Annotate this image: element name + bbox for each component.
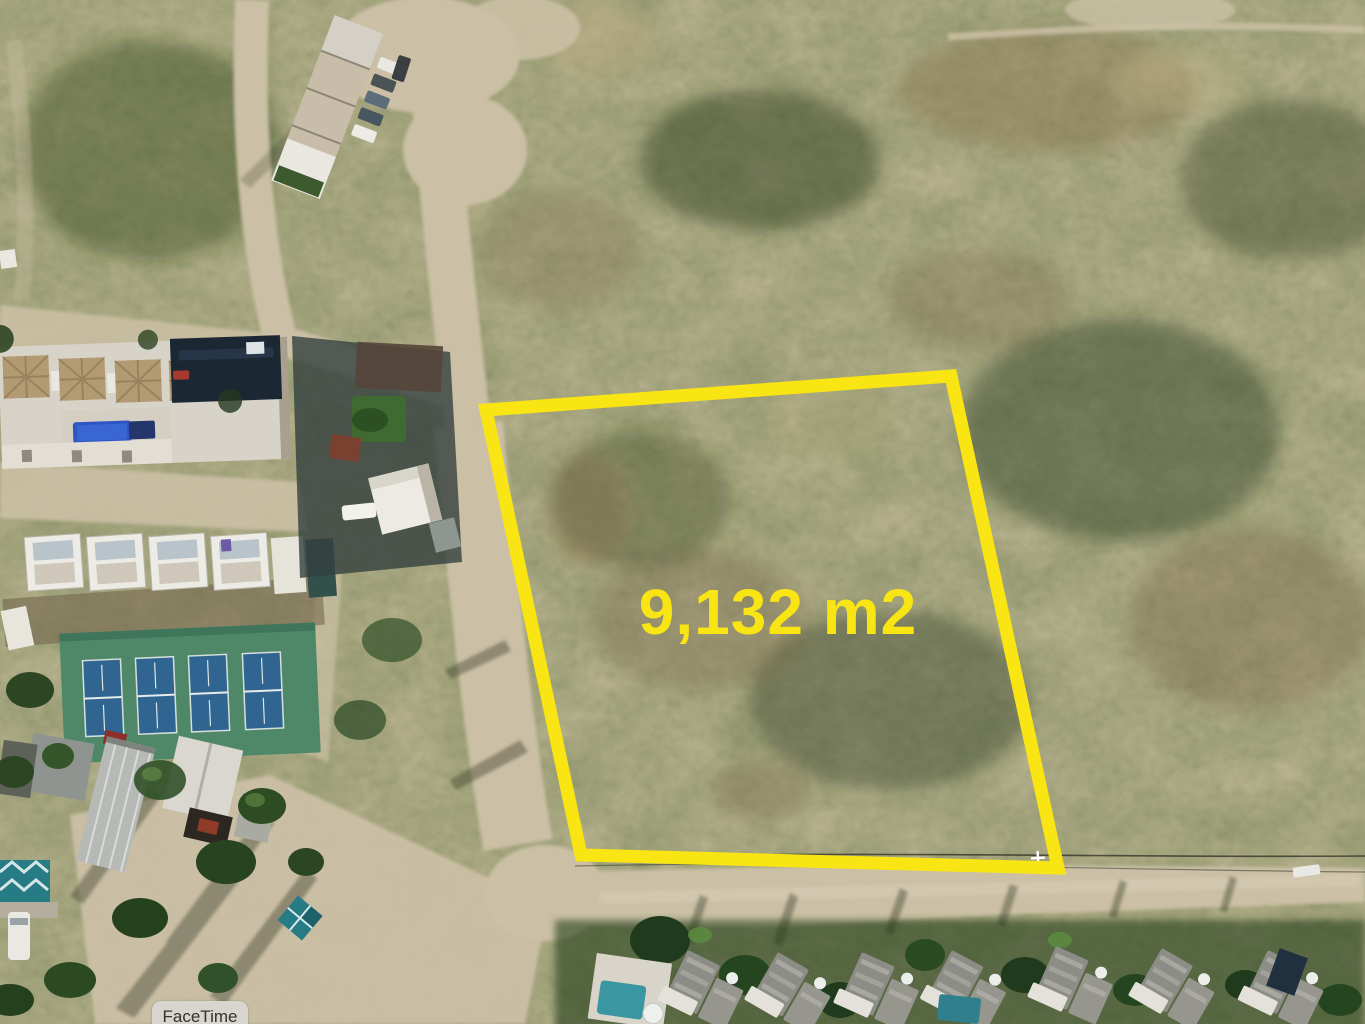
parcel-area-label: 9,132 m2: [639, 576, 917, 648]
facetime-button[interactable]: FaceTime: [152, 1001, 248, 1024]
teal-striped-awning: [0, 860, 50, 902]
teal-pool: [596, 980, 646, 1020]
aerial-photo: 9,132 m2 FaceTime: [0, 0, 1365, 1024]
spa-pool: [129, 420, 156, 439]
facetime-button-label: FaceTime: [163, 1008, 238, 1024]
red-car: [173, 370, 189, 380]
bottom-right-neighborhood: [555, 916, 1365, 1024]
aerial-scene: 9,132 m2: [0, 0, 1365, 1024]
mid-shaded-lot: [292, 336, 462, 578]
resort-pool-deck: [588, 953, 672, 1024]
teal-pool: [937, 994, 981, 1024]
